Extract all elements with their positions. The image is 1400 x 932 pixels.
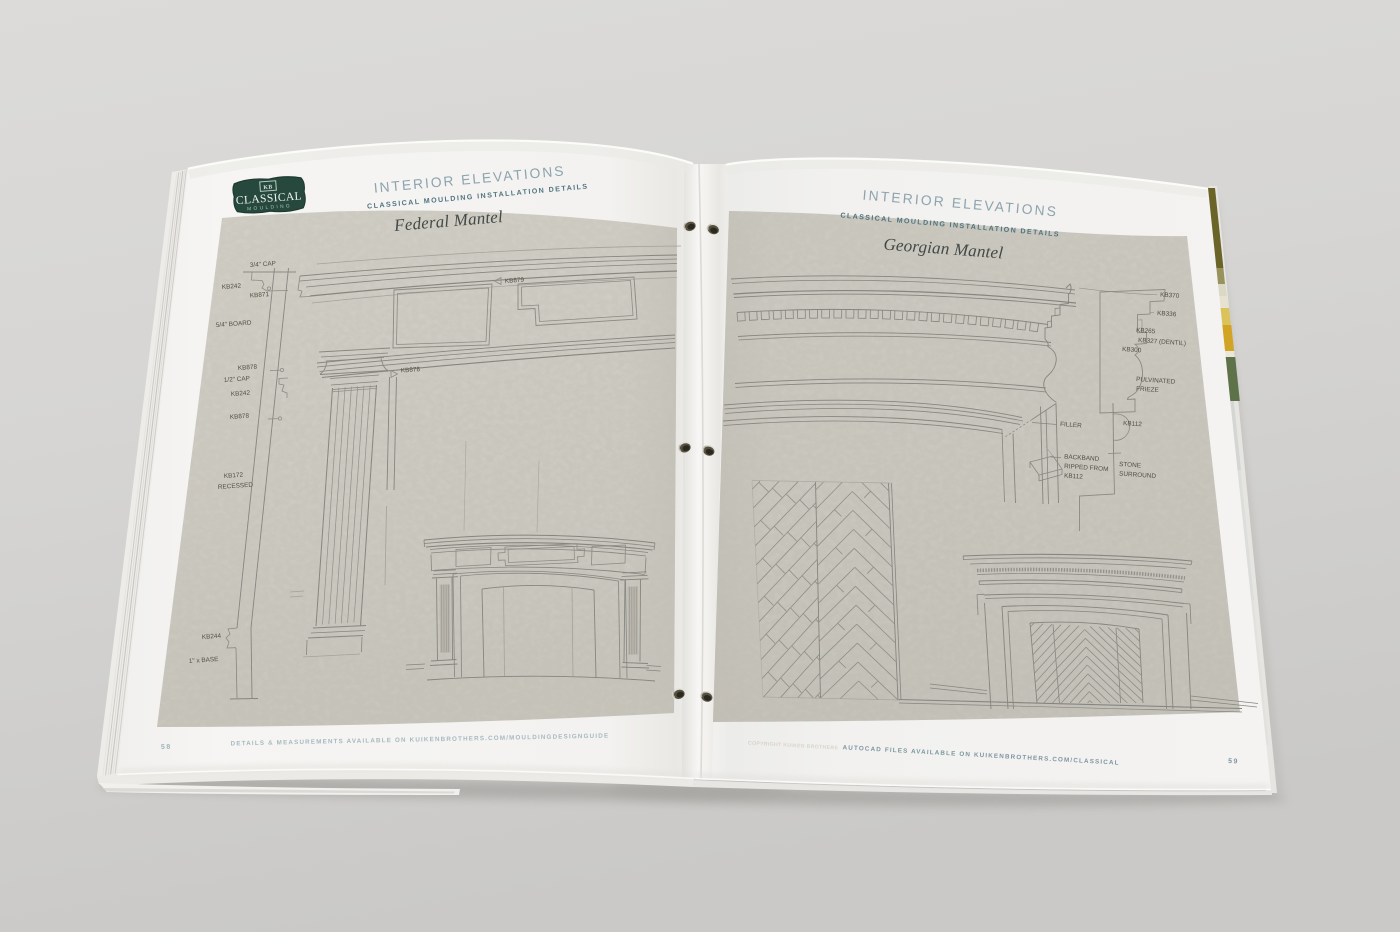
svg-text:KB242: KB242 [231, 390, 251, 398]
svg-text:KB242: KB242 [222, 283, 242, 291]
svg-text:KB871: KB871 [250, 291, 270, 299]
svg-text:KB265: KB265 [1136, 327, 1156, 335]
svg-text:KB336: KB336 [1157, 310, 1177, 318]
svg-text:58: 58 [161, 744, 172, 751]
svg-text:KB112: KB112 [1064, 473, 1084, 481]
svg-text:KB370: KB370 [1160, 292, 1180, 300]
svg-text:KB300: KB300 [1122, 346, 1142, 354]
svg-text:KB878: KB878 [238, 364, 258, 372]
svg-text:KB112: KB112 [1123, 420, 1143, 428]
svg-text:KB244: KB244 [202, 633, 222, 641]
svg-text:KB172: KB172 [224, 472, 244, 480]
svg-text:KB878: KB878 [230, 413, 250, 421]
svg-text:59: 59 [1228, 758, 1239, 766]
svg-text:KB: KB [263, 184, 273, 191]
svg-text:KB878: KB878 [401, 366, 421, 374]
svg-text:KB879: KB879 [505, 277, 525, 285]
